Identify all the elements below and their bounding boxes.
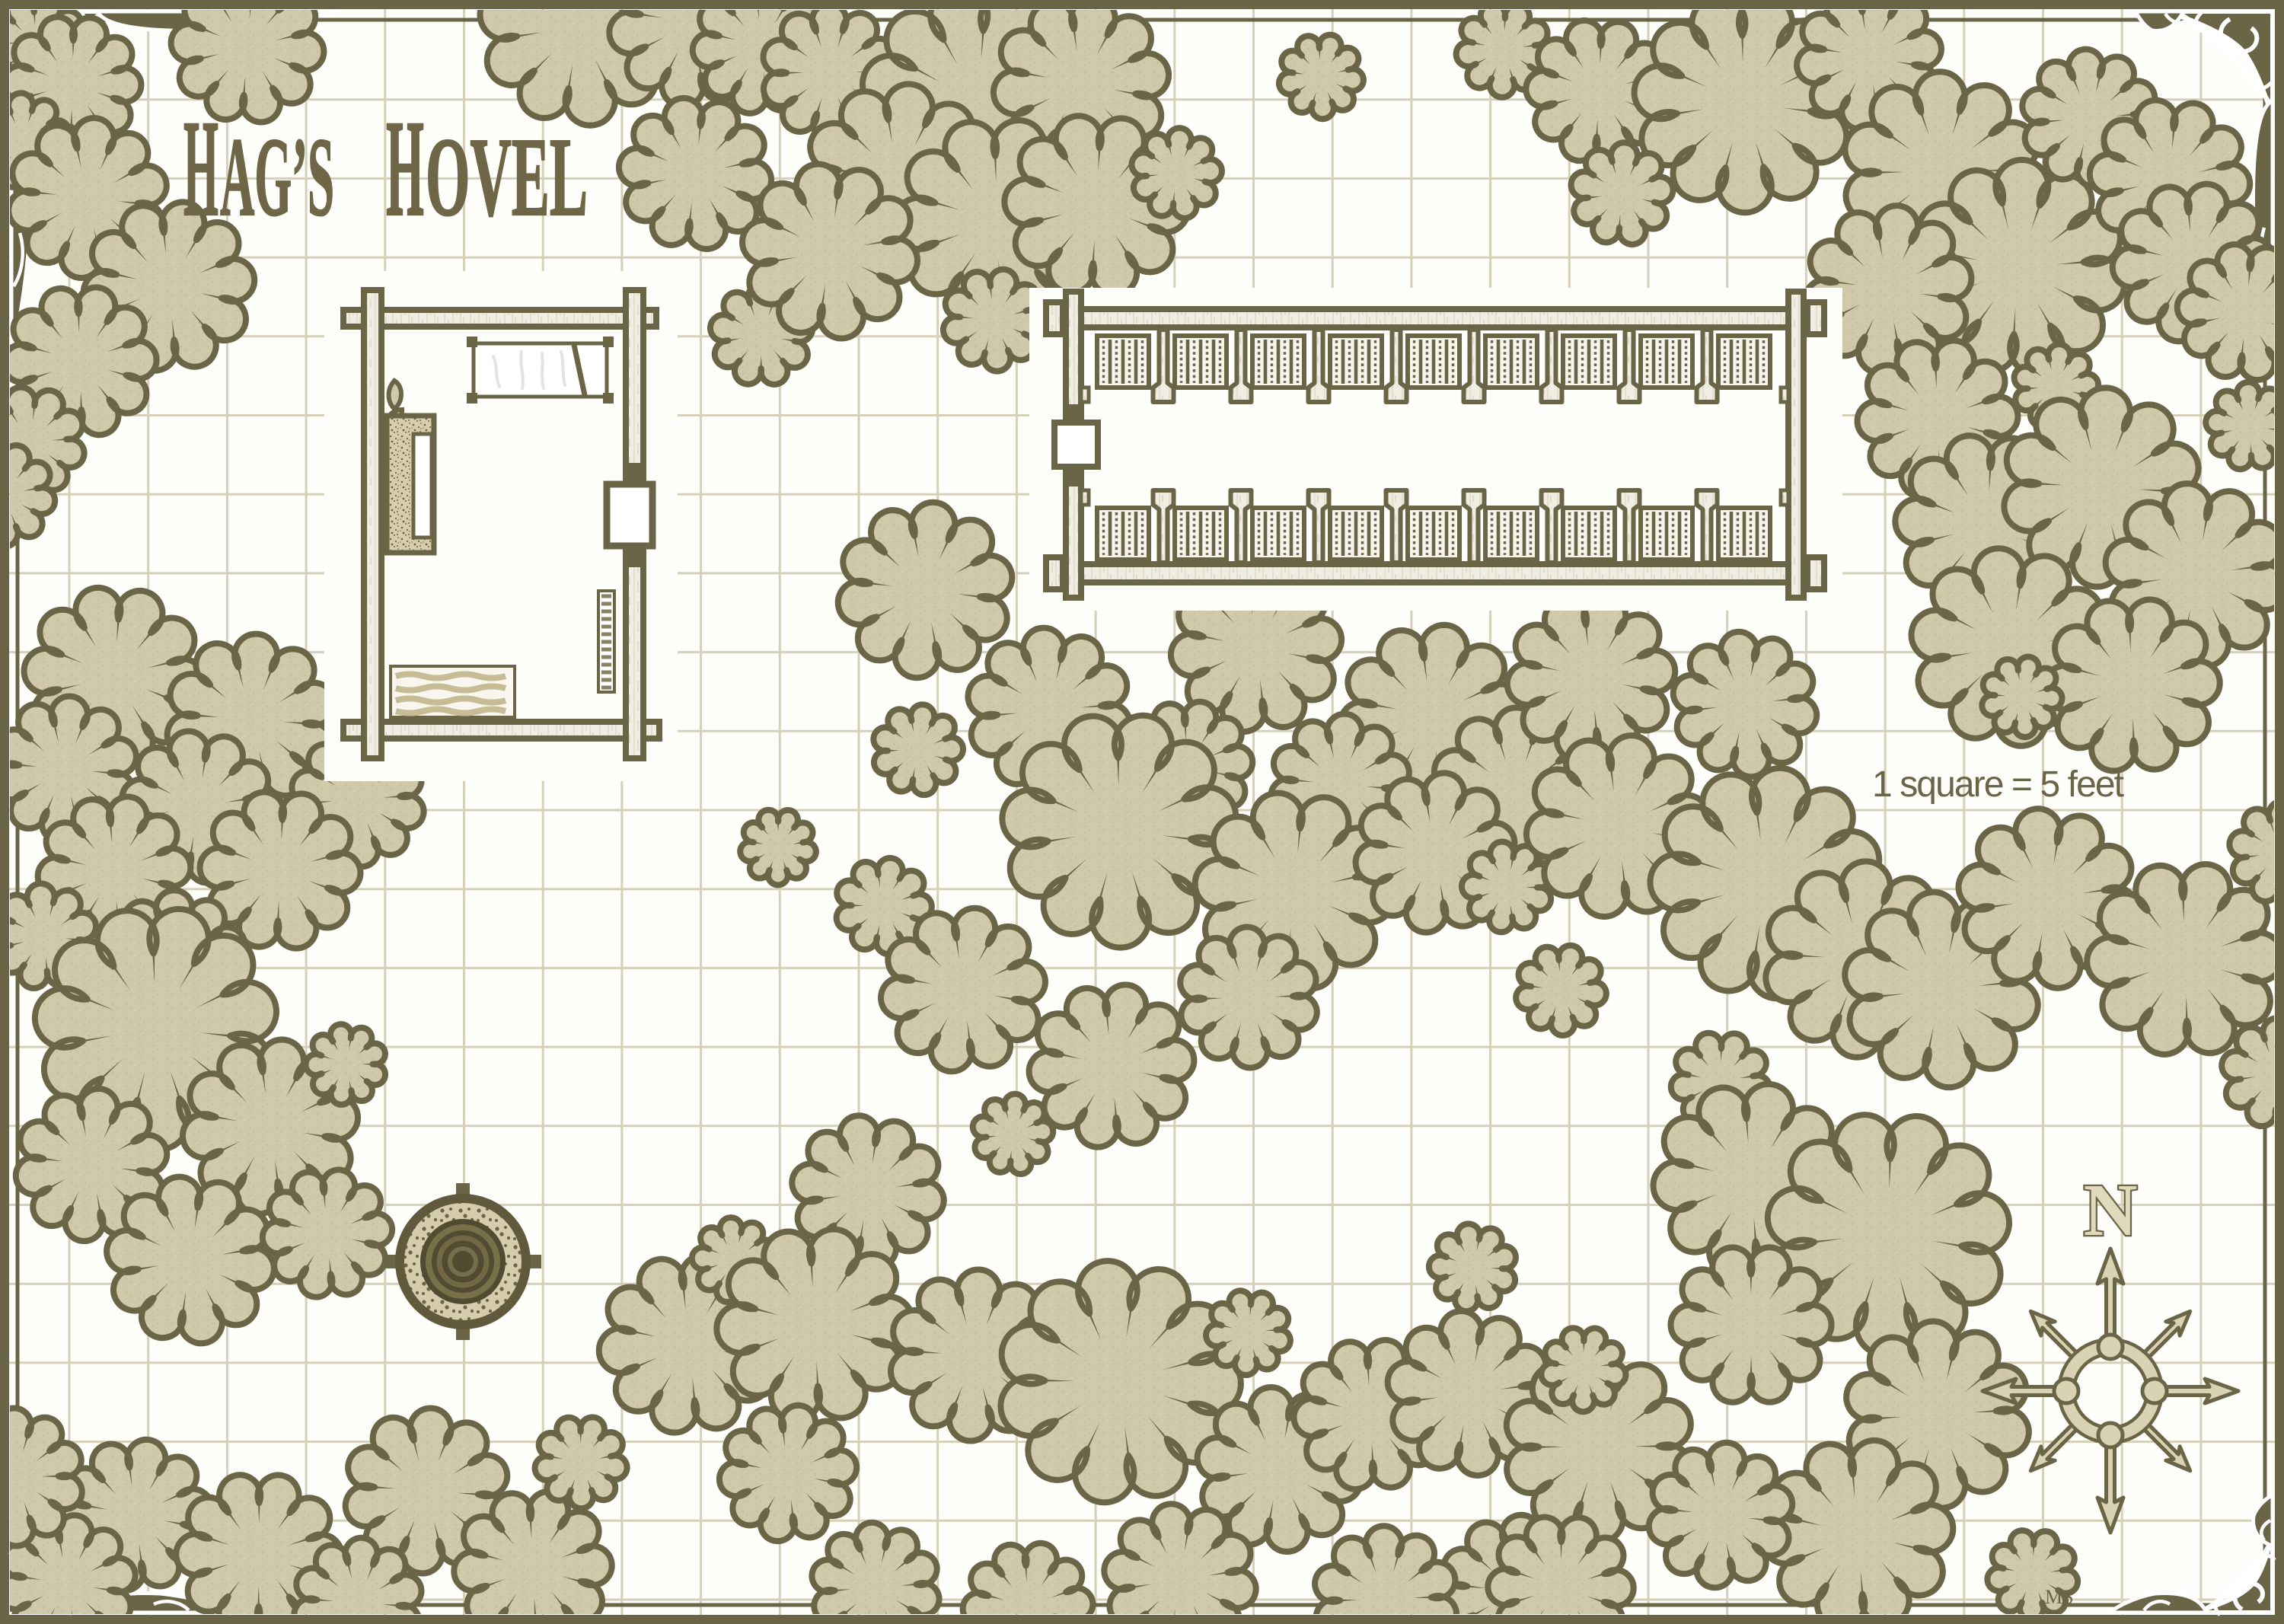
svg-text:MS: MS — [2045, 1586, 2074, 1608]
svg-text:1 square = 5 feet: 1 square = 5 feet — [1872, 764, 2124, 805]
svg-text:N: N — [2084, 1169, 2138, 1252]
svg-text:HAG’SHOVEL: HAG’SHOVEL — [183, 92, 588, 245]
